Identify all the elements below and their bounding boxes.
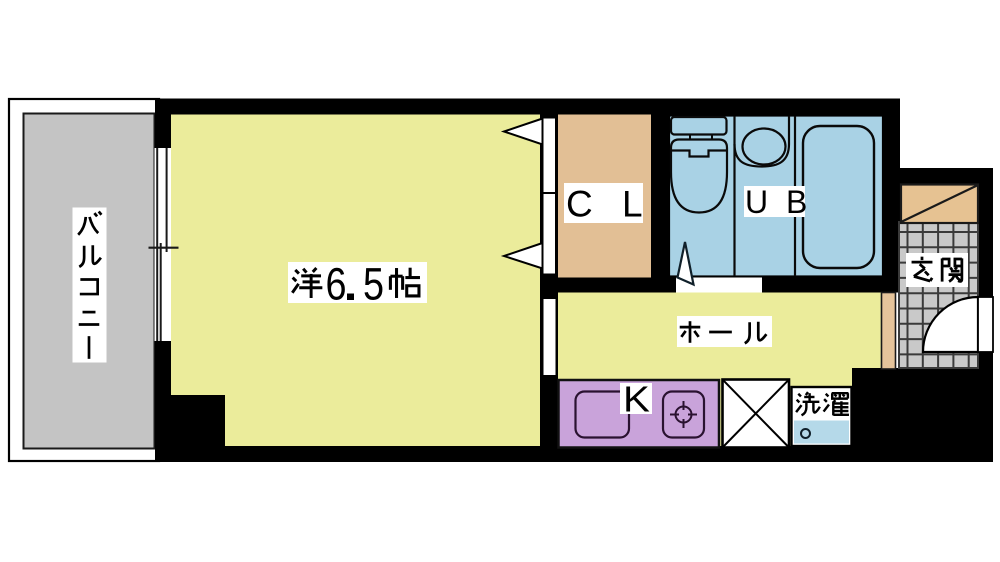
svg-text:C L: C L [566,184,652,225]
svg-text:6: 6 [326,258,347,309]
svg-text:U B: U B [745,184,812,220]
svg-text:K: K [623,379,650,420]
svg-text:5: 5 [363,258,384,309]
